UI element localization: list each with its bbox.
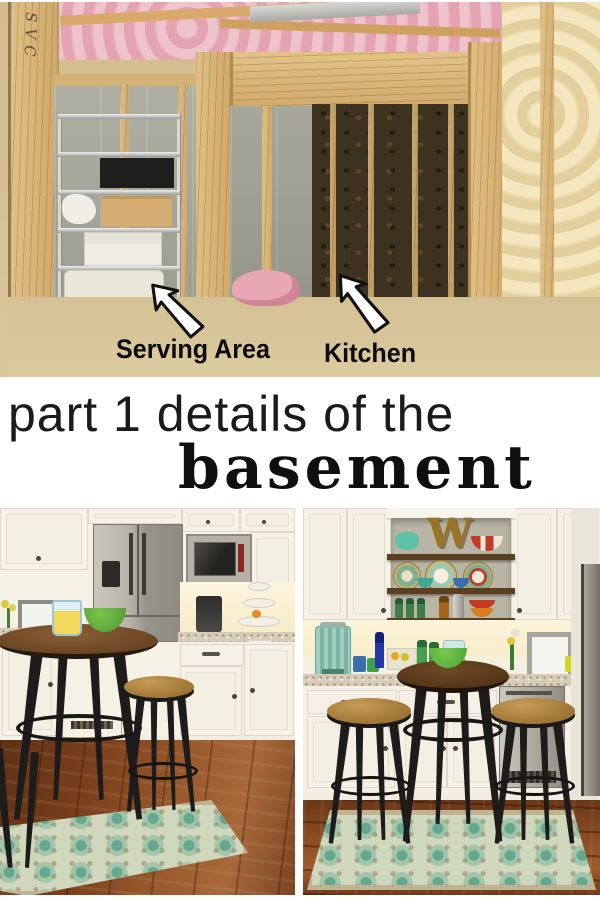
flower-bloom	[507, 637, 515, 645]
water-dispenser	[102, 561, 120, 587]
granite-counter-right	[178, 632, 295, 642]
kitchen-stud	[448, 104, 454, 304]
bottom-left-photo-kitchen	[0, 508, 295, 895]
stool-brace	[495, 776, 575, 796]
flower-bloom	[1, 600, 9, 608]
lemonade-pitcher	[52, 600, 82, 636]
kitchen-stud	[412, 104, 418, 304]
serving-area-label: Serving Area	[116, 334, 270, 365]
black-electronics-box	[100, 158, 174, 188]
cabinet-knob	[453, 746, 458, 751]
beverage-dispenser	[315, 626, 351, 676]
cabinet-knob	[381, 608, 386, 613]
flower-stems	[7, 608, 10, 630]
white-drawer-unit	[84, 232, 162, 266]
flower-bloom	[511, 628, 520, 637]
shelf-board	[387, 554, 515, 560]
fridge-handle	[506, 691, 552, 695]
kitchen-label: Kitchen	[324, 338, 416, 369]
flowers	[0, 598, 18, 630]
rack-shelf	[58, 114, 180, 119]
red-pattern-bowl	[471, 536, 503, 551]
top-photo-unfinished-basement: SVC	[0, 2, 600, 377]
citrus-fruit	[401, 653, 409, 661]
green-bottle	[395, 598, 403, 618]
cabinet-over-fridge	[88, 508, 182, 524]
table-brace-ring	[16, 714, 142, 742]
flower-stems	[510, 642, 514, 670]
teal-area-rug	[307, 810, 596, 890]
blue-bottle	[375, 632, 384, 668]
tier-plate	[238, 616, 280, 627]
stool-brace	[331, 776, 411, 796]
cabinet-door	[180, 666, 242, 736]
drawer-pull	[202, 652, 220, 656]
rack-shelf	[58, 152, 180, 157]
built-in-microwave	[186, 534, 252, 586]
green-bottle	[417, 598, 425, 618]
upper-cabinet-right	[240, 508, 295, 532]
cocktail-shaker	[453, 594, 464, 618]
citrus-fruit	[391, 652, 399, 660]
amber-bottle	[439, 596, 449, 618]
upper-cabinet-right	[511, 508, 557, 620]
flower-bloom	[9, 604, 16, 611]
upper-cabinet-left	[0, 508, 88, 570]
cabinet-knob	[517, 608, 522, 613]
cabinet-knob	[250, 688, 255, 693]
lower-cabinets-right	[178, 642, 295, 738]
fridge-handle	[142, 533, 146, 595]
stool-seat	[327, 698, 411, 724]
stool-brace	[128, 762, 198, 780]
cabinet-knob	[262, 520, 266, 524]
red-orange-bowls	[471, 608, 493, 617]
shelf-board	[387, 588, 515, 594]
collage-page: SVC	[0, 0, 600, 900]
fridge-handle	[129, 533, 133, 595]
basement-floor	[8, 297, 600, 377]
tier-plate	[243, 598, 275, 608]
cabinet-knob	[206, 520, 210, 524]
cabinet-knob	[383, 746, 388, 751]
white-fabric-bundle	[62, 194, 96, 224]
upper-cabinet-left	[347, 508, 391, 620]
dispenser-lid	[320, 622, 346, 628]
kitchen-stud	[330, 104, 336, 304]
blue-cup	[353, 656, 366, 672]
flowers	[499, 628, 525, 670]
rack-post	[58, 114, 61, 316]
table-brace-ring	[403, 718, 503, 742]
bottom-right-photo-serving-area: W	[303, 508, 600, 895]
stool-seat	[491, 698, 575, 724]
tier-plate	[248, 582, 270, 591]
microwave-control	[238, 544, 244, 572]
opening-left-post	[196, 52, 233, 314]
fridge-door-gap	[137, 525, 139, 615]
cabinet-knob	[232, 694, 237, 699]
decorative-letter: W	[427, 510, 472, 557]
header-beam	[196, 52, 508, 111]
decorative-plate	[393, 562, 421, 590]
cabinet-knob	[36, 556, 41, 561]
title-band: part 1 details of the basement	[0, 377, 600, 508]
microwave-window	[194, 542, 236, 576]
pink-insulation-pile	[232, 270, 300, 306]
hall-refrigerator	[581, 564, 600, 796]
title-line-2: basement	[178, 433, 536, 503]
green-bottle	[406, 598, 414, 618]
cardboard-boxes	[102, 196, 172, 227]
coffee-maker	[196, 596, 222, 632]
shelf-niche: W	[391, 518, 511, 626]
fruit	[252, 610, 261, 618]
tiered-stand	[236, 582, 280, 632]
stool-seat	[124, 676, 194, 698]
cabinet-knob	[48, 682, 53, 687]
upper-cabinet-right	[182, 508, 240, 532]
upper-cabinet-left	[303, 508, 347, 620]
teal-teapot	[395, 532, 419, 550]
